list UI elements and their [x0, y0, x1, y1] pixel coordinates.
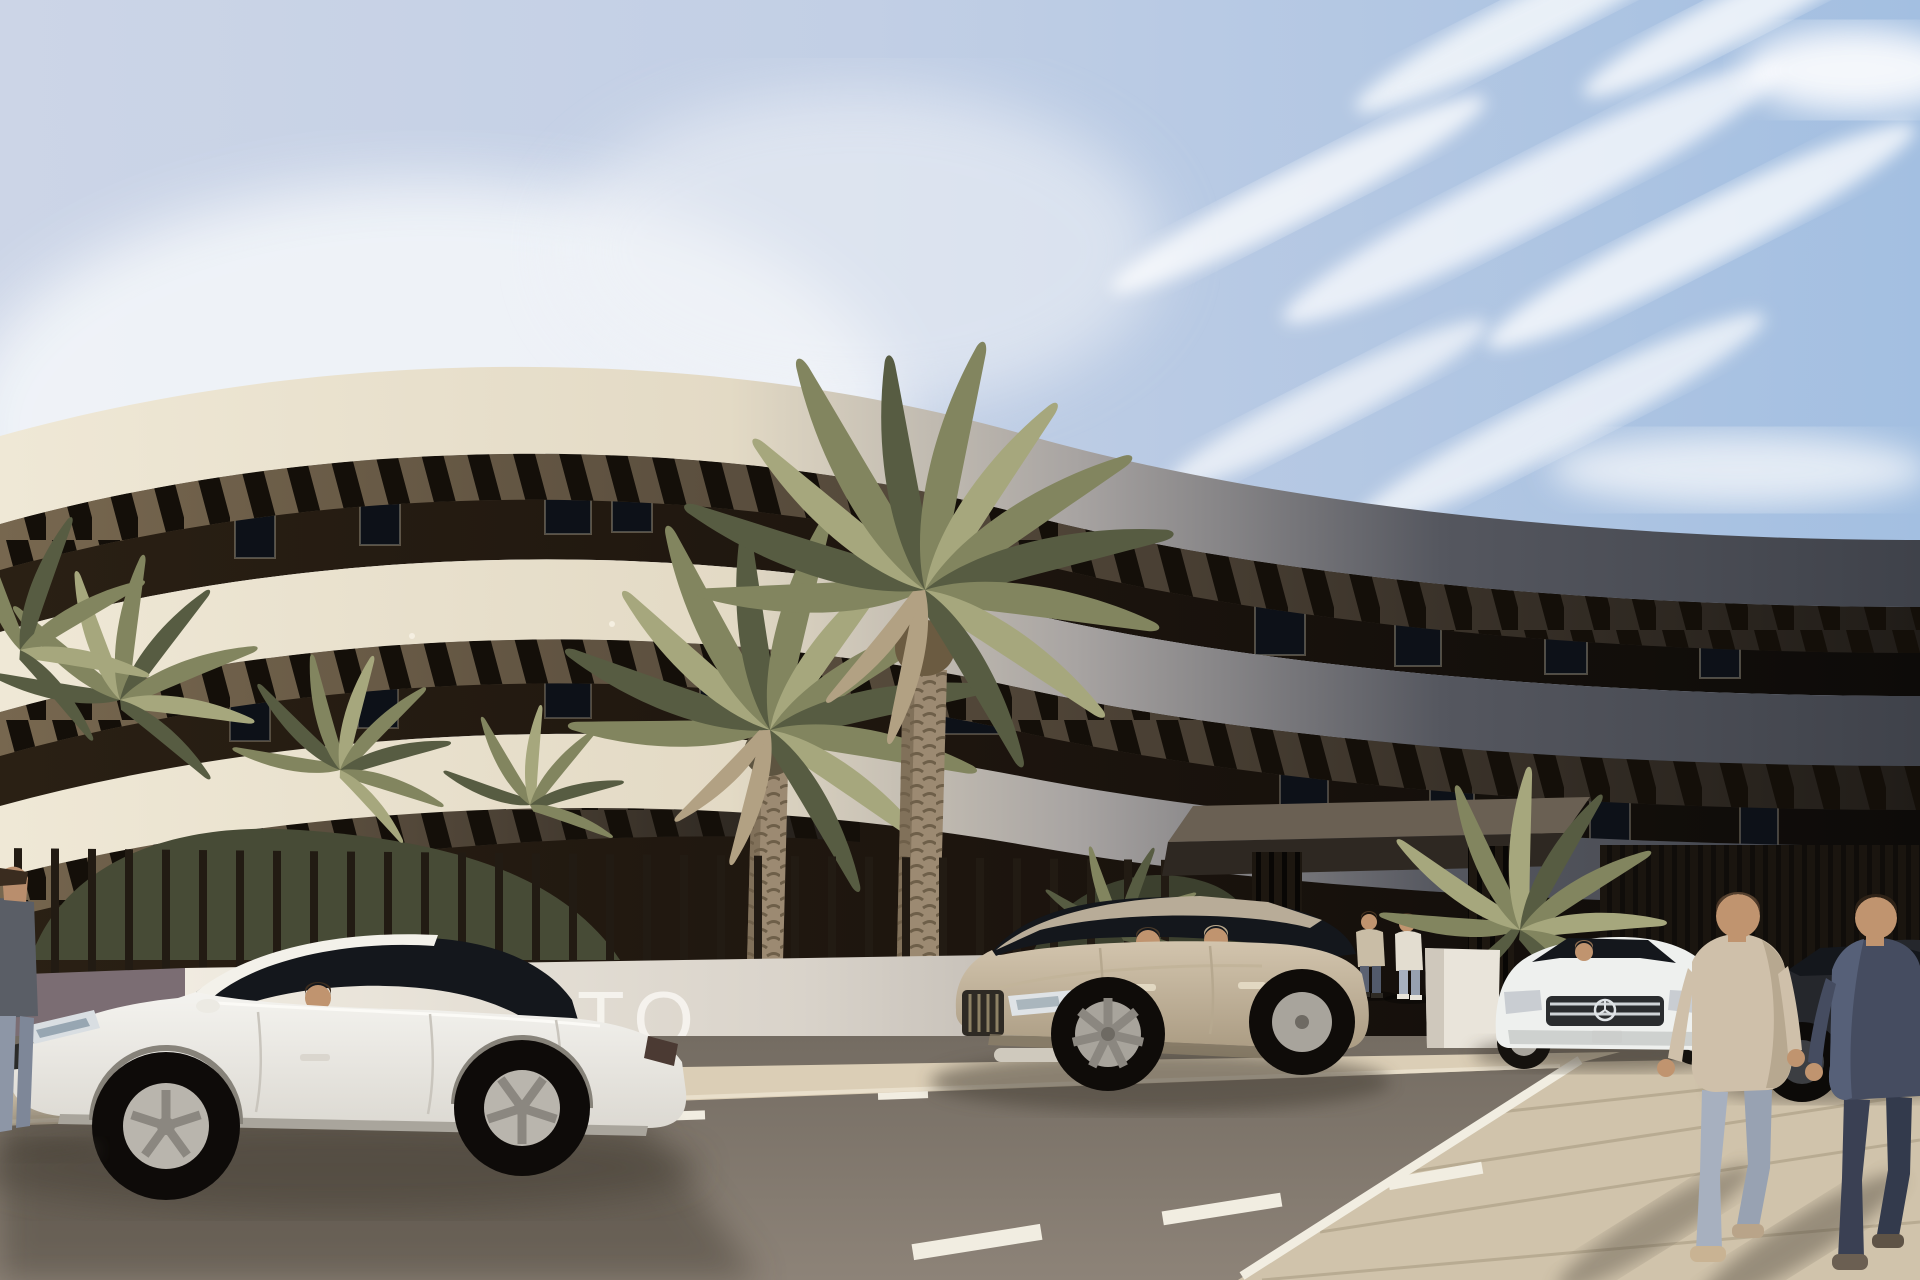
haze-cloud [560, 90, 1160, 410]
architectural-render: TO [0, 0, 1920, 1280]
suv-rear-wheel [1249, 969, 1355, 1075]
sedan-rear-wheel [454, 1038, 590, 1176]
cloud-puff [1550, 434, 1920, 506]
scene-canvas: TO [0, 0, 1920, 1280]
white-pedestal-side [1425, 948, 1444, 1048]
sedan-front-wheel [92, 1048, 240, 1200]
suv-front-wheel [1051, 977, 1165, 1091]
